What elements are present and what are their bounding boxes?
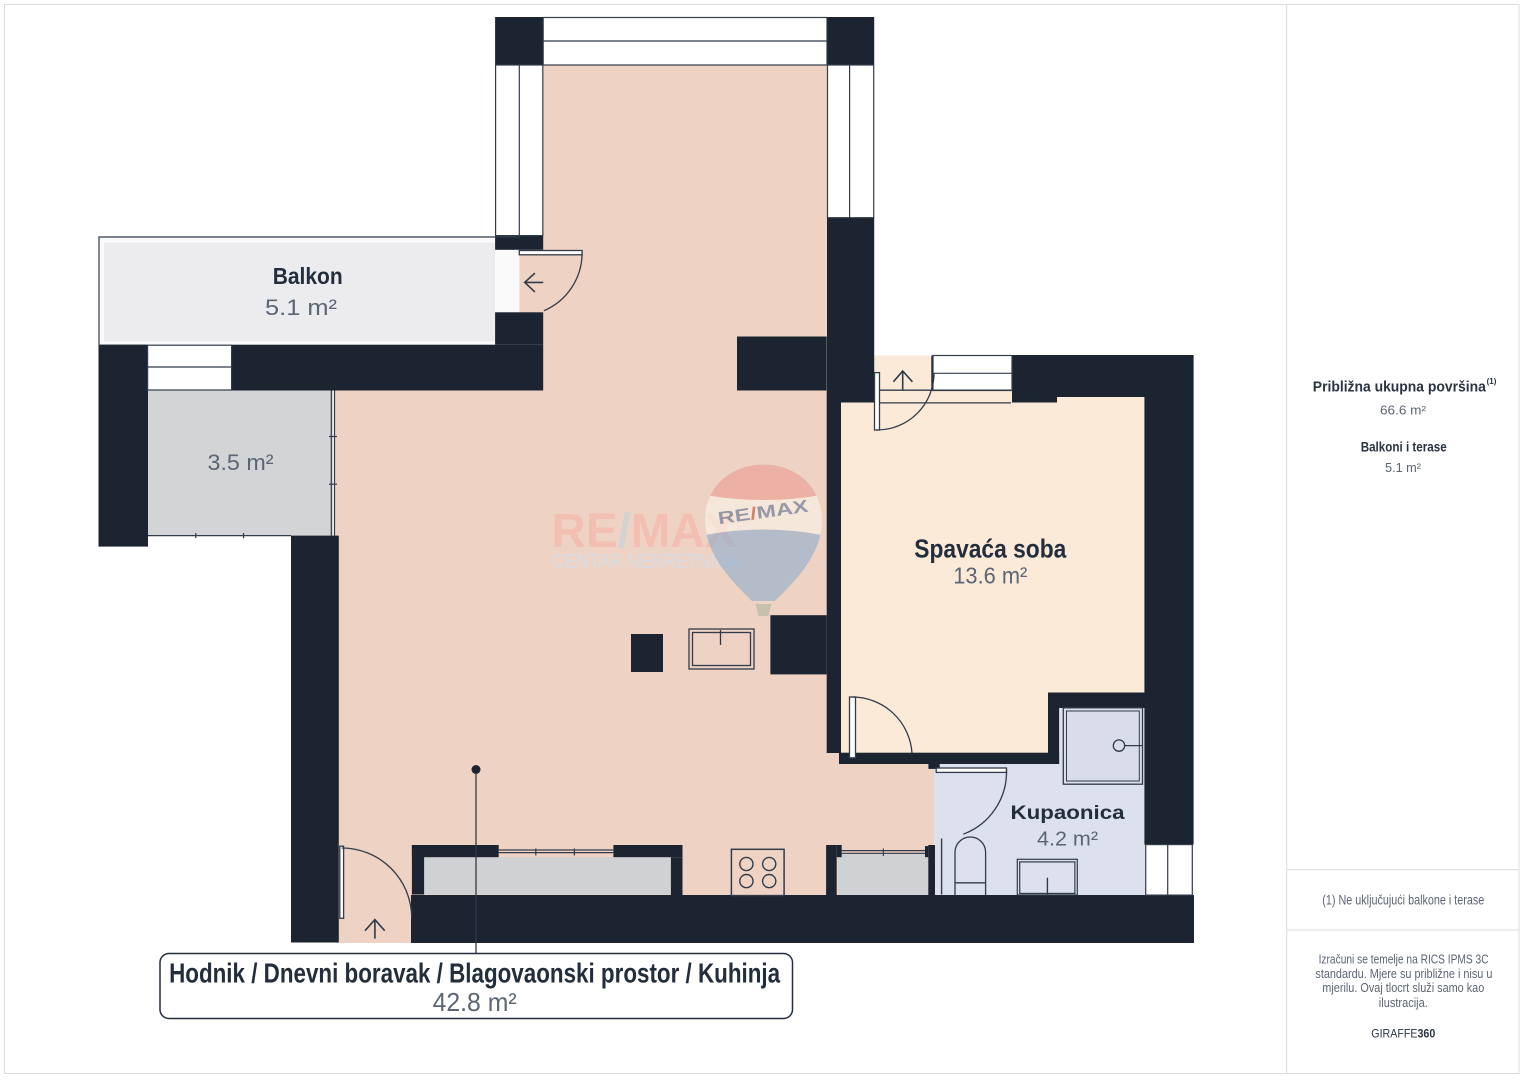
svg-text:GIRAFFE360: GIRAFFE360 bbox=[1371, 1026, 1435, 1040]
svg-text:ilustracija.: ilustracija. bbox=[1379, 995, 1428, 1010]
svg-text:(1): (1) bbox=[1487, 377, 1497, 386]
svg-text:Kupaonica: Kupaonica bbox=[1011, 803, 1125, 824]
svg-text:(1) Ne uključujući balkone i t: (1) Ne uključujući balkone i terase bbox=[1322, 891, 1484, 907]
svg-text:Izračuni se temelje na RICS IP: Izračuni se temelje na RICS IPMS 3C bbox=[1319, 951, 1489, 966]
svg-text:4.2 m²: 4.2 m² bbox=[1037, 829, 1098, 851]
svg-text:66.6 m²: 66.6 m² bbox=[1380, 403, 1427, 418]
svg-text:3.5 m²: 3.5 m² bbox=[208, 450, 275, 475]
svg-text:13.6 m²: 13.6 m² bbox=[953, 563, 1027, 589]
svg-text:mjerilu. Ovaj tlocrt služi sam: mjerilu. Ovaj tlocrt služi samo kao bbox=[1322, 980, 1484, 995]
svg-text:Spavaća soba: Spavaća soba bbox=[914, 534, 1066, 564]
svg-text:CENTAR NEKRETNINA: CENTAR NEKRETNINA bbox=[553, 552, 740, 573]
svg-text:5.1 m²: 5.1 m² bbox=[1385, 460, 1422, 475]
svg-text:Približna ukupna površina: Približna ukupna površina bbox=[1313, 379, 1487, 396]
svg-text:5.1 m²: 5.1 m² bbox=[265, 295, 338, 320]
svg-text:42.8 m²: 42.8 m² bbox=[433, 987, 517, 1017]
svg-text:Balkoni i terase: Balkoni i terase bbox=[1361, 439, 1447, 454]
svg-text:standardu. Mjere su približne: standardu. Mjere su približne i nisu u bbox=[1315, 966, 1492, 981]
svg-text:Balkon: Balkon bbox=[273, 263, 343, 289]
svg-text:Hodnik / Dnevni boravak / Blag: Hodnik / Dnevni boravak / Blagovaonski p… bbox=[169, 958, 780, 989]
